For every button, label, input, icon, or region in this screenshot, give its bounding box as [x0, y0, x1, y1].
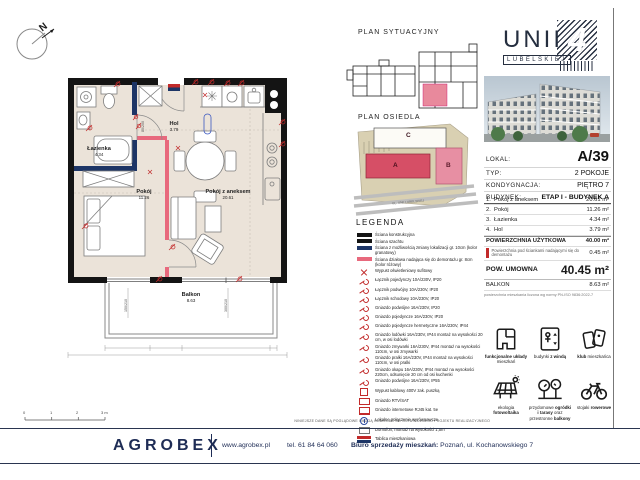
legend-symbol-wall-structural [356, 232, 372, 237]
legend-symbol-rtv-sat [356, 398, 372, 406]
footer: AGROBEX www.agrobex.pl tel. 61 84 64 060… [0, 428, 640, 464]
room-label-balcony: Balkon 8.63 [165, 292, 217, 303]
building-a [366, 154, 430, 178]
usable-area-row: POWIERZCHNIA UŻYTKOWA40.00 m² [484, 236, 611, 247]
door-dim: 80/200 [141, 121, 145, 132]
legend-symbol-socket-double [356, 305, 372, 313]
feature-bike-racks: stojaki rowerowe [572, 375, 616, 421]
disclaimer-text: NINIEJSZE DANE SĄ POGLĄDOWE I MOGĄ ODBIE… [250, 419, 490, 423]
scale-3: 3 m [101, 410, 108, 415]
area-table: 1.Pokój z aneksem20.61 m² 2.Pokój11.26 m… [484, 195, 611, 299]
feature-gardens-balconies: przydomowe ogródki i tarasy oraz przestr… [528, 375, 572, 421]
right-margin-line [613, 8, 614, 428]
window-dim-left: 150/210 [124, 299, 128, 312]
room-label-living: Pokój z aneksem 20.61 [192, 189, 264, 200]
legend-symbol-socket-double-ip55 [356, 378, 372, 386]
brochure-page: N [0, 0, 640, 480]
red-bar [486, 248, 489, 258]
meter-board-symbol [168, 84, 180, 91]
demountable-note-row: Powierzchnia pod ściankami nadającymi si… [484, 247, 611, 261]
building-photo [484, 76, 610, 142]
legend-symbol-ceiling-light [356, 268, 372, 276]
window-dim-right: 300/210 [224, 299, 228, 312]
situational-plan-title: PLAN SYTUACYJNY [358, 29, 440, 36]
legend-symbol-socket-fridge [356, 332, 372, 340]
footer-divider [211, 434, 212, 457]
floor-plan [0, 0, 345, 430]
balcony-area-row: BALKON8.63 m² [484, 280, 611, 291]
norm-note: powierzchnia mieszkania liczona wg normy… [484, 291, 611, 299]
legend-symbol-switch-double [356, 287, 372, 295]
legend-symbol-socket-dishwasher [356, 344, 372, 352]
balcony-windows [107, 278, 270, 284]
trees-icon [536, 375, 564, 403]
apartment-layout-icon [493, 326, 519, 352]
legend-symbol-socket-washer [356, 355, 372, 363]
detail-row-lokal: LOKAL: A/39 [484, 146, 611, 168]
table-row: 2.Pokój11.26 m² [484, 205, 611, 215]
footer-website: www.agrobex.pl [222, 442, 270, 449]
building-c-label: C [406, 132, 411, 139]
feature-photovoltaics: ekologiafotowoltaika [484, 375, 528, 421]
legend-symbol-cable-outlet-400v [356, 388, 372, 397]
legend-symbol-wall-navy [356, 245, 372, 250]
legend-symbol-wall-pink [356, 257, 372, 262]
legend-symbol-wall-shaft [356, 239, 372, 244]
scale-1: 1 [50, 410, 52, 415]
solar-panel-icon [492, 375, 520, 403]
club-cards-icon [581, 326, 607, 352]
legend-symbol-switch-single [356, 277, 372, 285]
features-grid: funkcjonalne układymieszkań budynki z wi… [484, 326, 614, 421]
legend-symbol-switch-stair [356, 296, 372, 304]
legend-symbol-socket-single [356, 314, 372, 322]
detail-row-kondygnacja: KONDYGNACJA: PIĘTRO 7 [484, 180, 611, 192]
shaft [265, 85, 283, 113]
table-row: 1.Pokój z aneksem20.61 m² [484, 195, 611, 205]
unit-number: A/39 [577, 148, 609, 165]
situational-plan-diagram [345, 40, 480, 110]
footer-phone: tel. 61 84 64 060 [287, 442, 338, 449]
room-label-bathroom: Łazienka 4.34 [73, 146, 125, 157]
building-a-label: A [393, 162, 398, 169]
room-label-hall: Hol 3.79 [158, 121, 190, 132]
brand-number-graphic: 4 [557, 20, 597, 60]
table-row: 4.Hol3.79 m² [484, 226, 611, 236]
elevator-icon [537, 326, 563, 352]
contract-area-row: POW. UMOWNA 40.45 m² [484, 261, 611, 280]
scale-bar [25, 417, 105, 420]
room-label-room: Pokój 11.26 [122, 189, 166, 200]
scale-0: 0 [23, 410, 25, 415]
footer-office: Biuro sprzedaży mieszkań: Poznań, ul. Ko… [351, 442, 533, 449]
contract-area-value: 40.45 m² [561, 263, 609, 277]
feature-layouts: funkcjonalne układymieszkań [484, 326, 528, 365]
feature-residents-club: klub mieszkańca [572, 326, 616, 365]
brand-hatch-lines [560, 61, 594, 71]
legend-symbol-rj45 [356, 407, 372, 416]
legend-symbol-socket-hermetic [356, 323, 372, 331]
building-b-label: B [446, 162, 451, 169]
highlighted-unit [423, 84, 447, 106]
table-row: 3.Łazienka4.34 m² [484, 215, 611, 225]
brand-name: UNII [503, 26, 563, 54]
detail-row-typ: TYP: 2 POKOJE [484, 168, 611, 180]
scale-2: 2 [76, 410, 78, 415]
legend-symbol-socket-hood [356, 367, 372, 375]
bicycle-icon [580, 375, 608, 403]
agrobex-logo: AGROBEX [113, 437, 222, 455]
feature-elevator: budynki z windą [528, 326, 572, 365]
legend-title: LEGENDA [356, 218, 484, 227]
legend: LEGENDA Ściana konstrukcyjna Ściana szac… [356, 218, 484, 445]
